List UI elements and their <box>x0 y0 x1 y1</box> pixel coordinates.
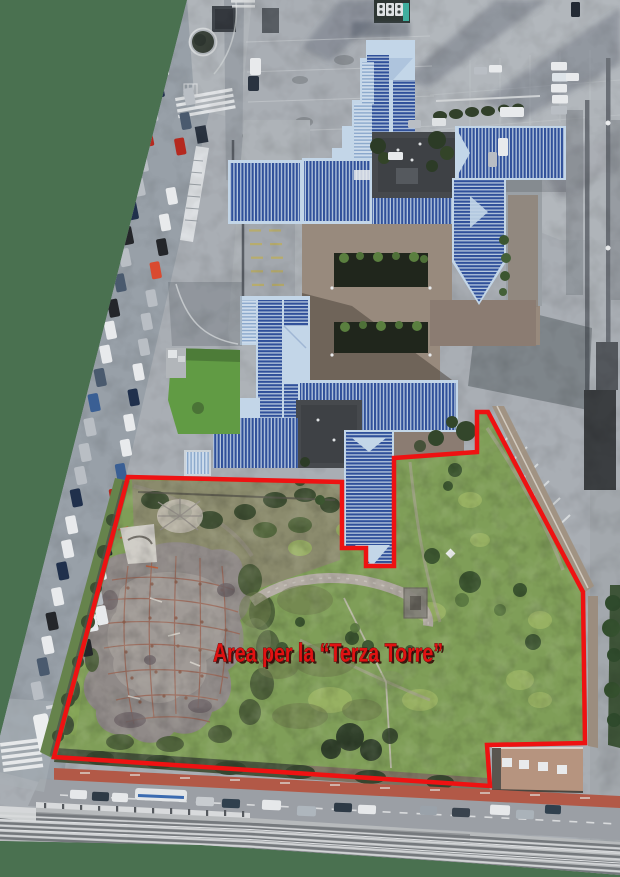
svg-text:Area per la “Terza Torre”: Area per la “Terza Torre” <box>213 638 443 668</box>
